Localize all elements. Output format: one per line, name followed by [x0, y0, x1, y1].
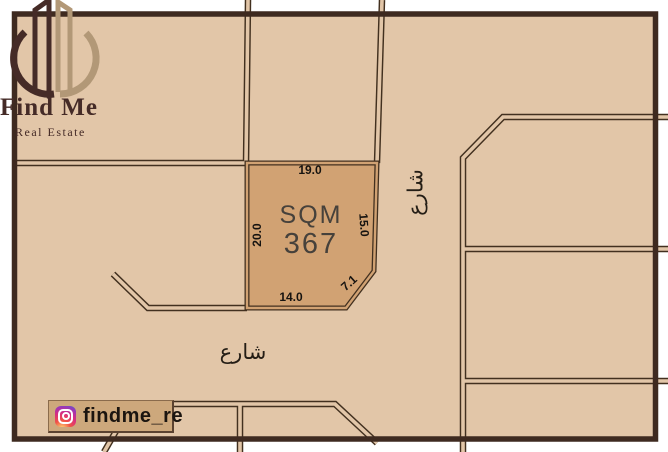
- dimension-top: 19.0: [290, 164, 330, 176]
- plot-area-unit: SQM: [261, 203, 361, 228]
- brand-tagline: Real Estate: [15, 125, 86, 140]
- brand-name: Find Me: [0, 94, 180, 122]
- street-label-bottom: شارع: [218, 342, 268, 363]
- instagram-icon: [55, 406, 76, 427]
- logo-building-tan: [58, 2, 70, 92]
- street-label-right: شارع: [406, 168, 427, 218]
- logo-building-dark: [35, 0, 49, 92]
- instagram-badge: findme_re: [48, 400, 174, 433]
- dimension-bottom: 14.0: [271, 291, 311, 303]
- logo-arc-tan: [60, 33, 96, 94]
- buildings-circle-logo-icon: [4, 0, 108, 108]
- instagram-handle: findme_re: [83, 405, 183, 428]
- brand-logo: Find Me Real Estate: [0, 0, 190, 150]
- plot-area-value: 367: [261, 230, 361, 259]
- plot-map-image: 19.0 20.0 15.0 7.1 14.0 SQM 367 شارع شار…: [0, 0, 668, 452]
